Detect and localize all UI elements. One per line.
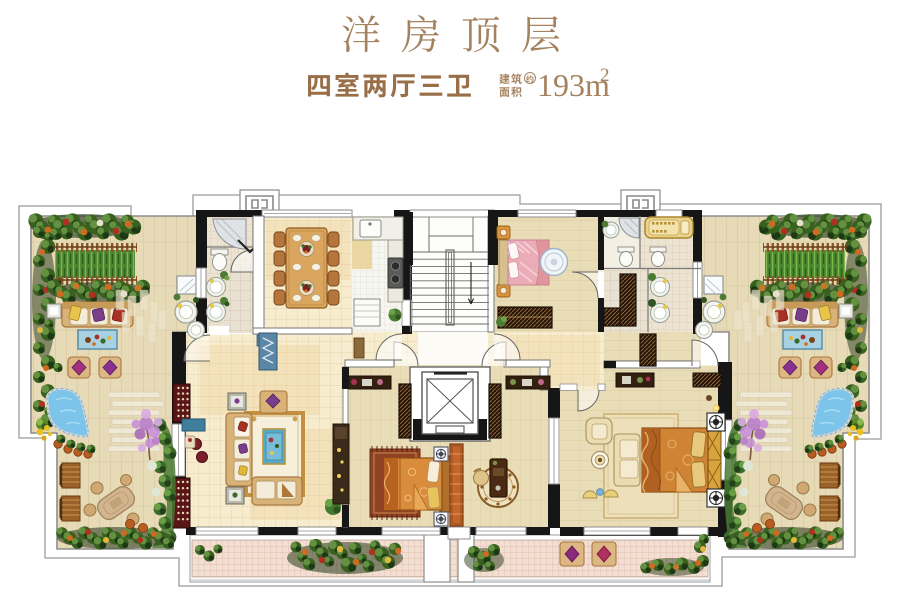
svg-text:2: 2 [600, 65, 610, 86]
